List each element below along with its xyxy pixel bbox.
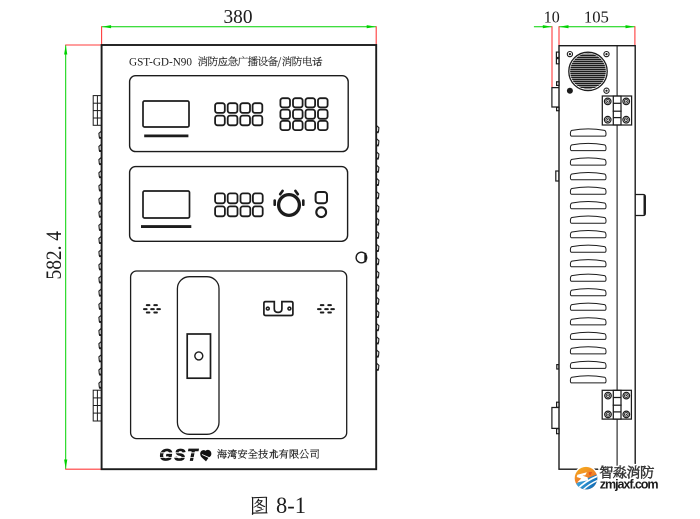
svg-text:zmjaxf.com: zmjaxf.com [600,478,659,492]
svg-text:GST: GST [160,445,200,464]
svg-text:8-1: 8-1 [276,493,306,518]
svg-text:105: 105 [584,7,609,26]
svg-text:582. 4: 582. 4 [41,231,66,280]
svg-text:GST-GD-N90: GST-GD-N90 [129,54,192,68]
svg-text:380: 380 [224,6,253,28]
svg-text:10: 10 [544,7,560,26]
